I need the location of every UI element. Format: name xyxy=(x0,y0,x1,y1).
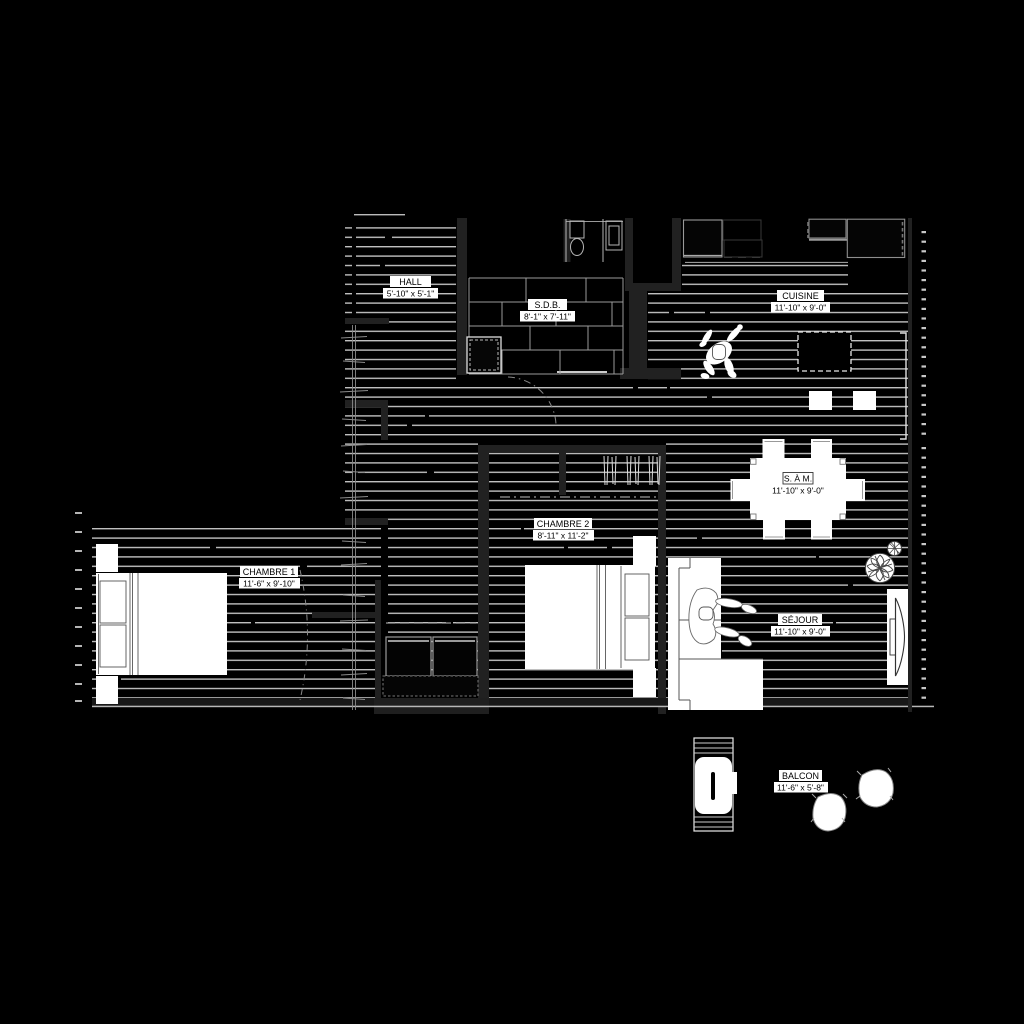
svg-text:11'-10" x 9'-0": 11'-10" x 9'-0" xyxy=(774,627,826,637)
svg-text:8'-1" x 7'-11": 8'-1" x 7'-11" xyxy=(524,312,571,322)
svg-text:CUISINE: CUISINE xyxy=(782,291,819,301)
svg-text:CHAMBRE 2: CHAMBRE 2 xyxy=(537,519,590,529)
svg-text:BALCON: BALCON xyxy=(782,771,819,781)
svg-text:5'-10" x 5'-1": 5'-10" x 5'-1" xyxy=(387,289,435,299)
svg-text:11'-6" x 9'-10": 11'-6" x 9'-10" xyxy=(243,579,295,589)
svg-text:11'-10" x 9'-0": 11'-10" x 9'-0" xyxy=(772,486,824,496)
svg-text:8'-11" x 11'-2": 8'-11" x 11'-2" xyxy=(537,531,588,541)
svg-text:S.D.B.: S.D.B. xyxy=(534,300,560,310)
svg-text:S. À M.: S. À M. xyxy=(784,474,812,484)
svg-text:HALL: HALL xyxy=(399,277,422,287)
svg-text:SÉJOUR: SÉJOUR xyxy=(782,615,819,625)
svg-text:11'-10" x 9'-0": 11'-10" x 9'-0" xyxy=(775,303,827,313)
svg-text:11'-6" x 5'-8": 11'-6" x 5'-8" xyxy=(777,783,824,793)
svg-text:CHAMBRE 1: CHAMBRE 1 xyxy=(243,567,296,577)
